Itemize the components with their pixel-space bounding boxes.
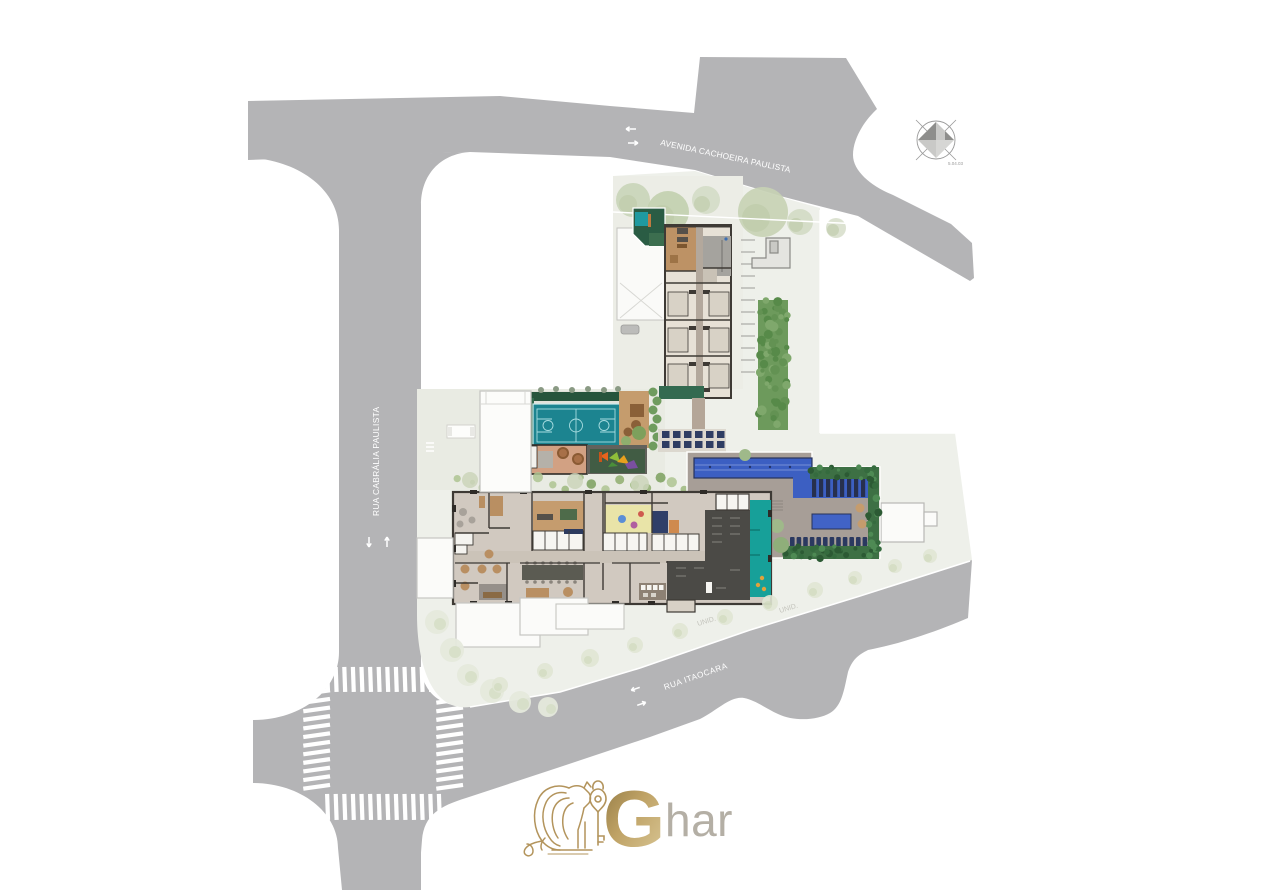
svg-text:5.04.03: 5.04.03 (948, 161, 964, 166)
svg-text:RUA CABRÁLIA PAULISTA: RUA CABRÁLIA PAULISTA (371, 407, 381, 516)
svg-text:har: har (665, 794, 733, 846)
svg-text:G: G (603, 774, 665, 863)
